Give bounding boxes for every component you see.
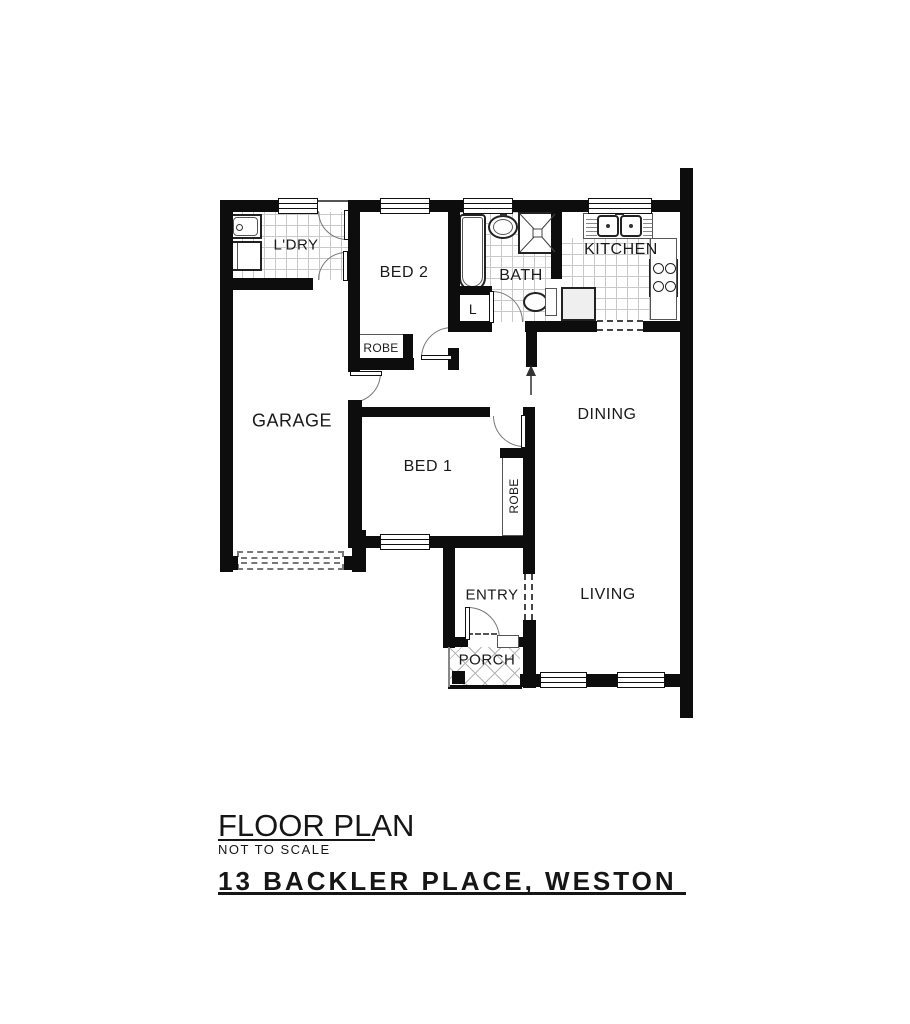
bath-door-leaf: [489, 291, 494, 323]
entry-living-opening: [524, 574, 533, 620]
room-label-bath: BATH: [499, 267, 542, 285]
wall-bath-south: [448, 321, 492, 332]
washing-machine-door-line: [237, 243, 238, 269]
room-label-kitchen: KITCHEN: [584, 241, 658, 259]
cooktop-burner: [653, 263, 664, 274]
bed1-door-leaf: [521, 415, 526, 448]
wall-linen-top: [452, 286, 492, 295]
room-label-living: LIVING: [580, 586, 635, 604]
window-laundry: [278, 198, 318, 214]
wall-living-south: [665, 674, 681, 687]
laundry-tap: [236, 224, 243, 231]
cooktop-burner: [653, 281, 664, 292]
laundry-door-leaf: [343, 251, 348, 281]
toilet-cistern: [545, 288, 557, 316]
wall-robe1-top: [500, 448, 535, 458]
wall-top: [220, 200, 278, 212]
bathtub-inner: [462, 217, 483, 287]
wall-bed1-south: [352, 536, 380, 548]
entry-step: [497, 635, 519, 648]
garage-hall-door-swing: [351, 373, 381, 403]
room-label-bed2: BED 2: [380, 264, 429, 282]
window-living-2: [617, 672, 665, 688]
washing-machine: [230, 241, 262, 271]
title-underline: [218, 839, 375, 841]
room-label-bed1: BED 1: [404, 458, 453, 476]
window-bath: [463, 198, 513, 214]
sink-drainer-left: [586, 216, 597, 237]
wall-entry-east-lower: [523, 620, 536, 688]
wall-bed2-bath: [448, 212, 460, 324]
wall-kitchen-south: [643, 321, 681, 332]
fridge-space: [561, 287, 596, 321]
wall-entry-south: [517, 637, 535, 647]
wall-top: [513, 200, 588, 212]
wall-laundry-south: [220, 278, 313, 290]
garage-panel-door: [237, 551, 344, 570]
kitchen-dining-opening: [597, 320, 643, 331]
sink-drainer-right: [643, 216, 652, 237]
porch-edge-left: [448, 647, 450, 687]
porch-post: [452, 671, 465, 684]
page-subtitle: NOT TO SCALE: [218, 842, 331, 857]
porch-edge-bottom: [448, 685, 522, 689]
wall-bed1-north: [352, 407, 490, 417]
wall-kitchen-west: [551, 212, 562, 279]
window-bed1: [380, 534, 430, 550]
bed2-door-leaf: [421, 355, 452, 360]
front-door-threshold-dashed: [467, 633, 497, 635]
wall-dining-stub: [526, 321, 537, 367]
bed1-door-swing: [493, 416, 524, 447]
window-living-1: [540, 672, 587, 688]
floor-plan-page: L'DRY BED 2 BATH KITCHEN GARAGE BED 1 DI…: [0, 0, 910, 1024]
wall-right-exterior: [680, 168, 693, 718]
wall-garage-south: [220, 556, 238, 570]
closet-label-robe-bed1: ROBE: [507, 478, 521, 513]
room-label-garage: GARAGE: [252, 411, 332, 432]
cooktop-burner: [665, 281, 676, 292]
wall-bed2-west: [348, 212, 360, 372]
cooktop-burner: [665, 263, 676, 274]
wall-robe2-stub: [403, 334, 413, 362]
window-kitchen: [588, 198, 652, 214]
wall-left-exterior: [220, 200, 233, 572]
wall-living-south: [587, 674, 617, 687]
wall-top: [348, 200, 380, 212]
room-label-laundry: L'DRY: [273, 237, 318, 254]
room-label-entry: ENTRY: [465, 587, 518, 604]
front-door-leaf: [465, 607, 470, 640]
wall-entry-west: [443, 538, 455, 648]
back-door-leaf: [344, 210, 349, 240]
sink-drain-right: [629, 224, 633, 228]
address-underline: [218, 892, 686, 895]
room-label-dining: DINING: [578, 406, 637, 424]
wall-bed1-west: [348, 400, 362, 548]
sink-drain-left: [606, 224, 610, 228]
window-bed2: [380, 198, 430, 214]
closet-label-linen: L: [469, 301, 477, 317]
garage-hall-door-leaf: [350, 371, 382, 376]
closet-label-robe-bed2: ROBE: [363, 341, 398, 355]
wall-top: [430, 200, 463, 212]
back-door-threshold: [318, 200, 348, 202]
wall-top: [652, 200, 693, 212]
basin-inner: [493, 219, 513, 235]
room-label-porch: PORCH: [459, 652, 516, 669]
